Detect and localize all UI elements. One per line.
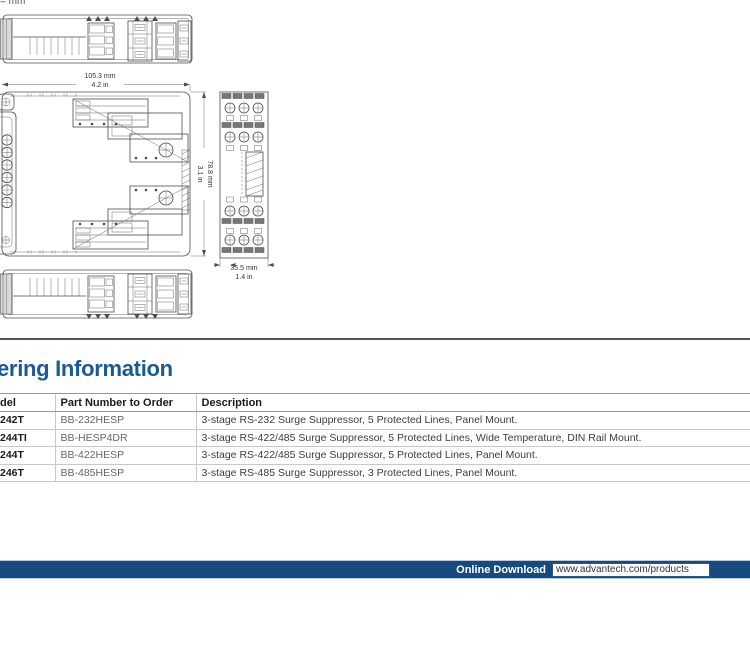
side-view-drawing: 35.5 mm 1.4 in xyxy=(214,86,276,286)
description-cell: 3-stage RS-232 Surge Suppressor, 5 Prote… xyxy=(196,412,750,430)
comb-slots xyxy=(13,278,86,296)
col-header-model: del xyxy=(0,394,55,412)
section-divider xyxy=(0,338,750,340)
part-number-cell: BB-422HESP xyxy=(55,447,196,465)
bottom-view-drawing xyxy=(0,266,200,326)
terminal-strip-d xyxy=(178,274,191,314)
part-number-cell: BB-485HESP xyxy=(55,464,196,482)
top-view-drawing xyxy=(0,10,200,68)
download-url-box[interactable]: www.advantech.com/products xyxy=(552,563,710,577)
footer-bar: Online Download www.advantech.com/produc… xyxy=(0,560,750,579)
description-cell: 3-stage RS-422/485 Surge Suppressor, 5 P… xyxy=(196,447,750,465)
description-cell: 3-stage RS-422/485 Surge Suppressor, 5 P… xyxy=(196,429,750,447)
dim-width-mm-label: 105.3 mm xyxy=(84,73,115,80)
online-download-label: Online Download xyxy=(456,564,546,576)
table-row: 246T BB-485HESP 3-stage RS-485 Surge Sup… xyxy=(0,464,750,482)
description-cell: 3-stage RS-485 Surge Suppressor, 3 Prote… xyxy=(196,464,750,482)
upper-terminal-assembly xyxy=(73,99,188,162)
model-cell: 246T xyxy=(0,464,55,482)
comb-slots xyxy=(13,37,86,55)
left-endcap-hatch xyxy=(0,19,12,59)
terminal-strip-d xyxy=(178,21,191,61)
terminal-block-a xyxy=(88,23,114,59)
part-number-cell: BB-232HESP xyxy=(55,412,196,430)
model-cell: 244TI xyxy=(0,429,55,447)
front-view-drawing: 105.3 mm 4.2 in xyxy=(0,68,216,288)
terminal-strip-b xyxy=(128,274,152,314)
table-row: 242T BB-232HESP 3-stage RS-232 Surge Sup… xyxy=(0,412,750,430)
terminal-strip-b xyxy=(128,21,152,61)
col-header-part-number: Part Number to Order xyxy=(55,394,196,412)
col-header-description: Description xyxy=(196,394,750,412)
right-edge-hatch xyxy=(182,150,190,210)
lower-terminal-assembly xyxy=(73,186,188,249)
model-cell: 244T xyxy=(0,447,55,465)
terminal-block-c xyxy=(156,276,176,312)
table-row: 244TI BB-HESP4DR 3-stage RS-422/485 Surg… xyxy=(0,429,750,447)
model-cell: 242T xyxy=(0,412,55,430)
part-number-cell: BB-HESP4DR xyxy=(55,429,196,447)
ordering-table: del Part Number to Order Description 242… xyxy=(0,393,750,482)
dim-width-in-label: 4.2 in xyxy=(91,82,108,89)
dim-height-in-label: 3.1 in xyxy=(196,165,203,182)
terminal-block-a xyxy=(88,276,114,312)
table-row: 244T BB-422HESP 3-stage RS-422/485 Surge… xyxy=(0,447,750,465)
dim-depth-in-label: 1.4 in xyxy=(235,274,252,281)
center-hatch xyxy=(242,152,263,196)
ordering-information-heading: ering Information xyxy=(0,356,173,382)
unit-note: = mm xyxy=(0,0,25,7)
left-endcap-hatch xyxy=(0,274,12,314)
terminal-block-c xyxy=(156,23,176,59)
dim-depth-mm-label: 35.5 mm xyxy=(230,265,257,272)
dim-height-mm-label: 78.8 mm xyxy=(206,160,213,187)
table-header-row: del Part Number to Order Description xyxy=(0,394,750,412)
